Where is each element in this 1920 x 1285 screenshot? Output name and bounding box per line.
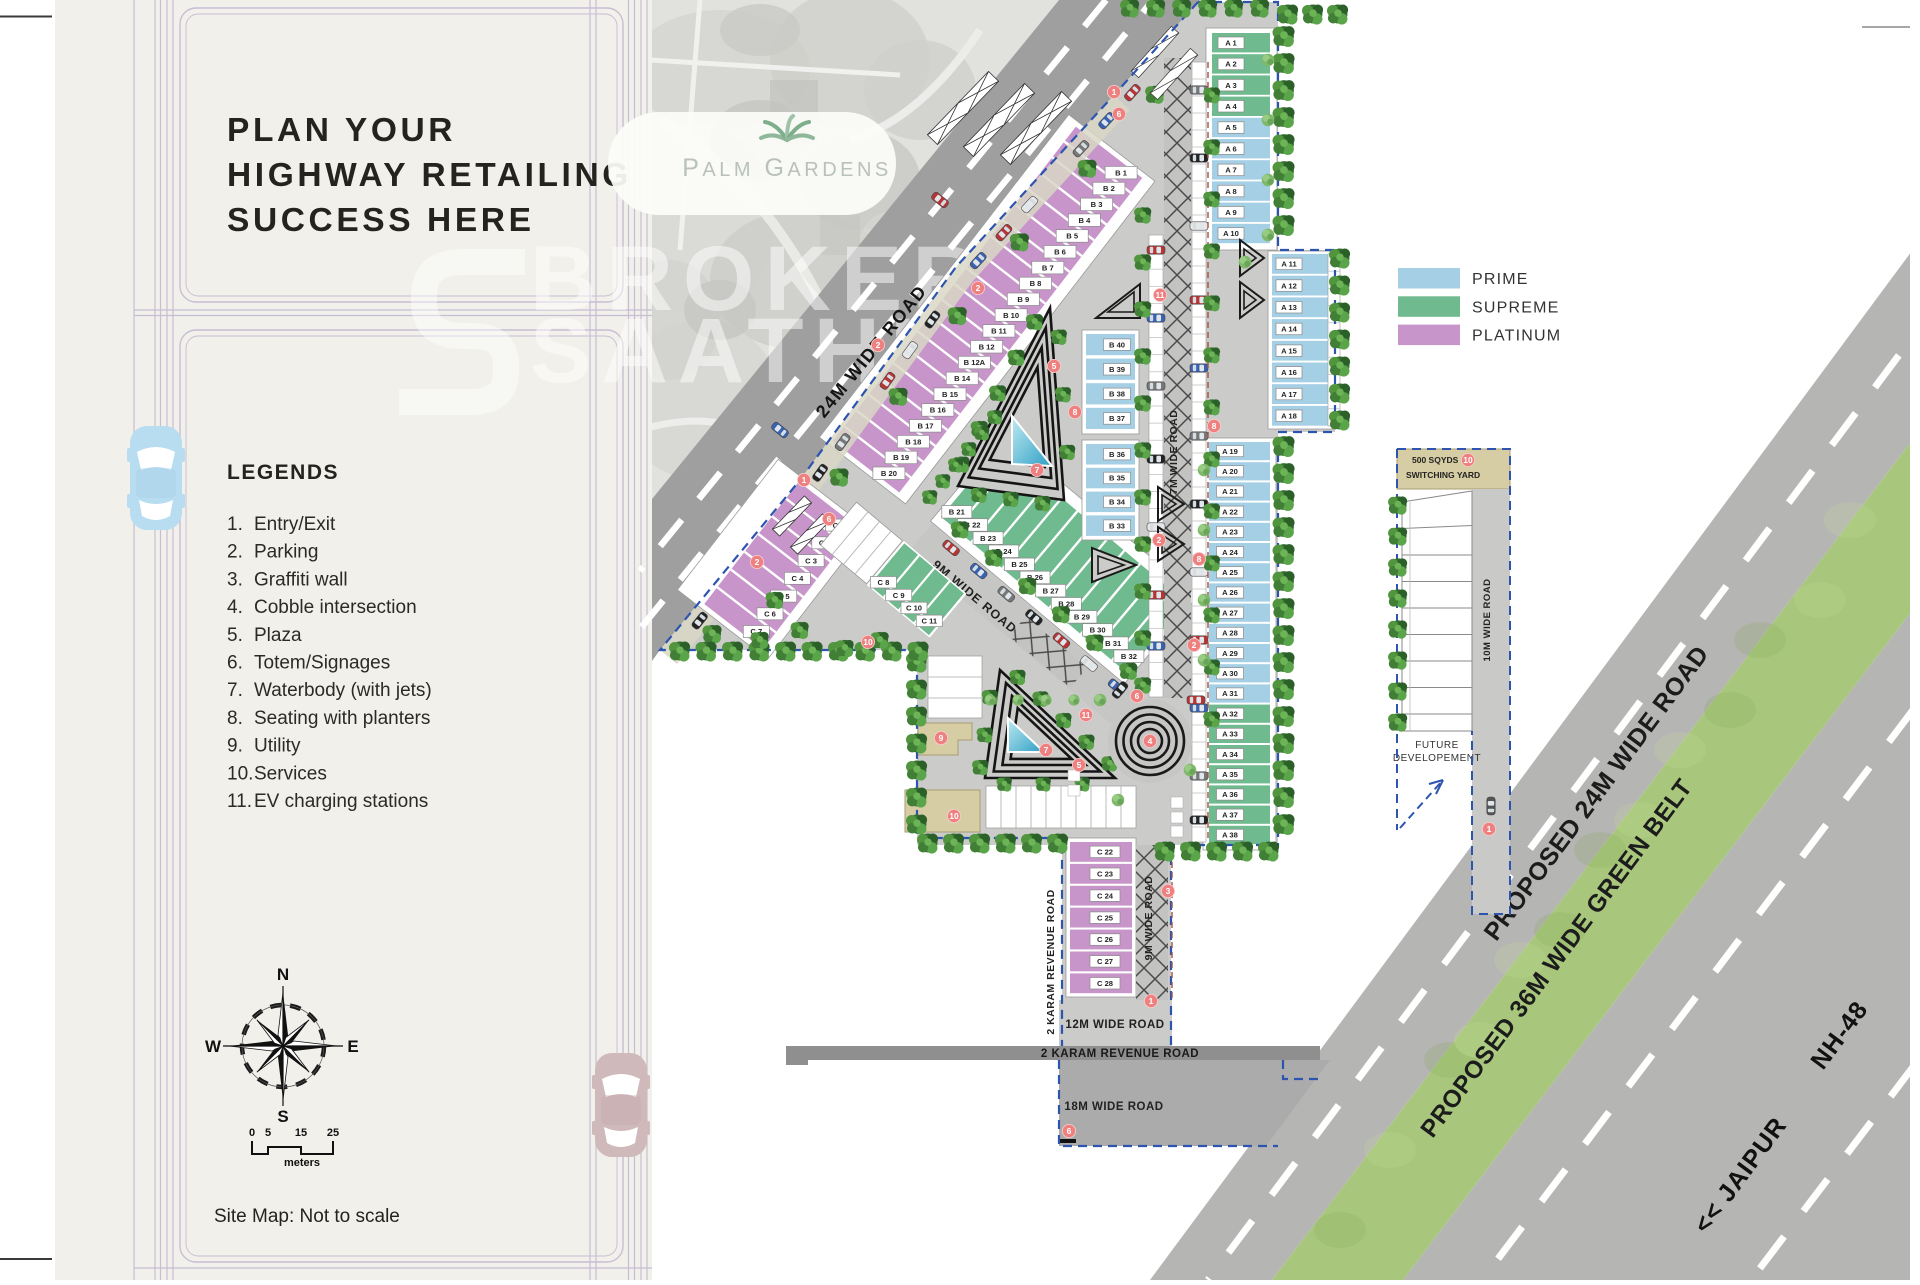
svg-text:Graffiti wall: Graffiti wall	[254, 569, 348, 590]
svg-text:12M WIDE ROAD: 12M WIDE ROAD	[1065, 1019, 1164, 1031]
svg-text:4.: 4.	[227, 597, 243, 618]
svg-text:C 22: C 22	[1097, 848, 1113, 857]
svg-text:Entry/Exit: Entry/Exit	[254, 514, 336, 535]
svg-text:10: 10	[1463, 455, 1473, 465]
svg-text:meters: meters	[284, 1157, 320, 1169]
svg-text:SWITCHING YARD: SWITCHING YARD	[1406, 470, 1480, 480]
svg-text:B 12: B 12	[979, 342, 995, 351]
svg-text:Totem/Signages: Totem/Signages	[254, 653, 390, 674]
svg-text:1: 1	[1487, 824, 1492, 834]
svg-text:B 35: B 35	[1109, 474, 1126, 483]
svg-text:PLATINUM: PLATINUM	[1472, 328, 1561, 345]
svg-text:B 39: B 39	[1109, 365, 1125, 374]
svg-text:PRIME: PRIME	[1472, 271, 1529, 288]
svg-text:C 23: C 23	[1097, 870, 1113, 879]
svg-text:PLAN YOUR: PLAN YOUR	[227, 112, 456, 149]
svg-text:A 32: A 32	[1222, 709, 1238, 718]
svg-text:A 10: A 10	[1223, 229, 1239, 238]
svg-text:A 25: A 25	[1222, 568, 1239, 577]
svg-text:B 16: B 16	[930, 406, 946, 415]
svg-text:A 24: A 24	[1222, 548, 1239, 557]
svg-text:A 38: A 38	[1222, 831, 1238, 840]
svg-text:C 8: C 8	[877, 578, 889, 587]
svg-text:7M WIDE ROAD: 7M WIDE ROAD	[1168, 410, 1180, 495]
svg-text:8: 8	[1073, 407, 1078, 417]
svg-text:7: 7	[1035, 465, 1040, 475]
svg-text:C 28: C 28	[1097, 979, 1113, 988]
svg-text:A 16: A 16	[1281, 368, 1297, 377]
svg-text:A 9: A 9	[1225, 208, 1237, 217]
svg-text:Site Map: Not to scale: Site Map: Not to scale	[214, 1206, 400, 1227]
svg-text:7.: 7.	[227, 680, 243, 701]
svg-text:8: 8	[1212, 421, 1217, 431]
svg-text:Parking: Parking	[254, 542, 318, 563]
svg-text:FUTURE: FUTURE	[1415, 740, 1459, 751]
svg-text:A 6: A 6	[1225, 144, 1237, 153]
svg-text:A 30: A 30	[1222, 669, 1238, 678]
svg-text:A 35: A 35	[1222, 770, 1239, 779]
svg-text:B 7: B 7	[1042, 263, 1054, 272]
svg-text:A 33: A 33	[1222, 730, 1238, 739]
svg-text:9M WIDE ROAD: 9M WIDE ROAD	[1143, 876, 1155, 961]
svg-text:A 31: A 31	[1222, 689, 1239, 698]
svg-text:A 2: A 2	[1225, 60, 1237, 69]
svg-text:A 26: A 26	[1222, 588, 1238, 597]
svg-text:5.: 5.	[227, 625, 243, 646]
svg-text:1: 1	[802, 475, 807, 485]
svg-text:C 25: C 25	[1097, 913, 1114, 922]
svg-text:SUCCESS HERE: SUCCESS HERE	[227, 202, 535, 239]
svg-text:1: 1	[1112, 87, 1117, 97]
svg-text:B 6: B 6	[1054, 248, 1066, 257]
svg-text:A 22: A 22	[1222, 507, 1238, 516]
svg-text:E: E	[347, 1037, 358, 1056]
svg-text:A 37: A 37	[1222, 810, 1238, 819]
svg-text:500 SQYDS: 500 SQYDS	[1412, 455, 1459, 465]
svg-text:A 27: A 27	[1222, 608, 1238, 617]
svg-text:B 14: B 14	[954, 374, 971, 383]
svg-text:A 12: A 12	[1281, 281, 1297, 290]
svg-text:B 36: B 36	[1109, 450, 1125, 459]
svg-text:6: 6	[1135, 691, 1140, 701]
svg-text:B 23: B 23	[980, 534, 996, 543]
svg-text:B 5: B 5	[1066, 232, 1079, 241]
svg-text:LEGENDS: LEGENDS	[227, 461, 339, 484]
svg-text:A 5: A 5	[1225, 123, 1237, 132]
svg-text:B 33: B 33	[1109, 521, 1125, 530]
svg-text:B 12A: B 12A	[964, 358, 986, 367]
svg-text:A 14: A 14	[1281, 325, 1298, 334]
svg-text:S: S	[277, 1107, 288, 1126]
svg-text:B 4: B 4	[1078, 216, 1091, 225]
svg-text:C 6: C 6	[764, 610, 776, 619]
svg-text:Waterbody (with jets): Waterbody (with jets)	[254, 680, 432, 701]
svg-text:B 31: B 31	[1105, 639, 1122, 648]
svg-text:2 KARAM REVENUE ROAD: 2 KARAM REVENUE ROAD	[1041, 1048, 1199, 1060]
svg-text:C 3: C 3	[805, 556, 817, 565]
svg-text:B 18: B 18	[905, 437, 921, 446]
svg-text:B 11: B 11	[991, 327, 1007, 336]
svg-text:18M WIDE ROAD: 18M WIDE ROAD	[1064, 1101, 1163, 1113]
svg-text:B 2: B 2	[1103, 184, 1115, 193]
svg-text:B 19: B 19	[893, 453, 909, 462]
svg-text:Seating with planters: Seating with planters	[254, 708, 430, 729]
svg-text:A 18: A 18	[1281, 412, 1297, 421]
svg-text:5: 5	[1077, 760, 1082, 770]
svg-text:5: 5	[1052, 361, 1057, 371]
svg-text:8: 8	[1197, 554, 1202, 564]
svg-text:1: 1	[1149, 996, 1154, 1006]
svg-text:C 11: C 11	[921, 617, 937, 626]
svg-text:C 27: C 27	[1097, 957, 1113, 966]
svg-text:C 4: C 4	[791, 574, 804, 583]
svg-text:A 8: A 8	[1225, 187, 1237, 196]
svg-text:A 1: A 1	[1225, 38, 1237, 47]
svg-text:B 9: B 9	[1017, 295, 1029, 304]
svg-text:A 20: A 20	[1222, 467, 1238, 476]
svg-text:N: N	[277, 965, 289, 984]
svg-text:3: 3	[1166, 886, 1171, 896]
svg-text:A 36: A 36	[1222, 790, 1238, 799]
svg-text:B 1: B 1	[1115, 168, 1128, 177]
svg-text:A 17: A 17	[1281, 390, 1297, 399]
svg-text:B 32: B 32	[1121, 652, 1137, 661]
svg-text:A 11: A 11	[1281, 260, 1297, 269]
svg-text:Cobble intersection: Cobble intersection	[254, 597, 417, 618]
svg-text:B 3: B 3	[1091, 200, 1103, 209]
svg-text:2: 2	[976, 283, 981, 293]
svg-text:6: 6	[1117, 109, 1122, 119]
svg-text:11.: 11.	[227, 791, 252, 812]
svg-text:B 21: B 21	[949, 508, 966, 517]
svg-text:11: 11	[1082, 710, 1091, 720]
svg-text:6: 6	[1067, 1126, 1072, 1136]
svg-text:25: 25	[327, 1127, 339, 1139]
svg-text:A 29: A 29	[1222, 649, 1238, 658]
svg-text:A 13: A 13	[1281, 303, 1297, 312]
svg-text:SUPREME: SUPREME	[1472, 299, 1560, 316]
svg-text:A 28: A 28	[1222, 629, 1238, 638]
svg-text:C 26: C 26	[1097, 935, 1113, 944]
svg-text:2: 2	[876, 340, 881, 350]
svg-text:10.: 10.	[227, 763, 253, 784]
svg-text:C 24: C 24	[1097, 891, 1114, 900]
svg-text:6.: 6.	[227, 653, 243, 674]
svg-text:PALM GARDENS: PALM GARDENS	[682, 154, 892, 182]
svg-text:A 21: A 21	[1222, 487, 1239, 496]
svg-text:2: 2	[755, 557, 760, 567]
svg-text:B 17: B 17	[917, 422, 933, 431]
svg-text:10: 10	[949, 811, 959, 821]
svg-text:A 34: A 34	[1222, 750, 1239, 759]
svg-text:A 7: A 7	[1225, 166, 1237, 175]
svg-text:B 40: B 40	[1109, 340, 1125, 349]
svg-text:B 34: B 34	[1109, 498, 1126, 507]
svg-text:B 8: B 8	[1030, 279, 1042, 288]
svg-text:B 27: B 27	[1043, 586, 1059, 595]
svg-text:A 4: A 4	[1225, 102, 1237, 111]
svg-text:2: 2	[1157, 535, 1162, 545]
svg-text:A 23: A 23	[1222, 528, 1238, 537]
svg-text:3.: 3.	[227, 569, 243, 590]
svg-text:Plaza: Plaza	[254, 625, 302, 646]
svg-text:B 30: B 30	[1090, 626, 1106, 635]
svg-text:B 38: B 38	[1109, 390, 1125, 399]
svg-text:6: 6	[827, 514, 832, 524]
svg-text:1.: 1.	[227, 514, 243, 535]
svg-text:W: W	[205, 1037, 222, 1056]
svg-text:8.: 8.	[227, 708, 243, 729]
svg-text:Utility: Utility	[254, 736, 301, 757]
svg-text:C 10: C 10	[906, 604, 922, 613]
svg-text:2 KARAM REVENUE ROAD: 2 KARAM REVENUE ROAD	[1045, 889, 1057, 1034]
svg-text:Services: Services	[254, 763, 327, 784]
svg-text:B 20: B 20	[881, 469, 897, 478]
svg-text:9: 9	[939, 733, 944, 743]
svg-text:A 19: A 19	[1222, 447, 1238, 456]
svg-text:DEVELOPEMENT: DEVELOPEMENT	[1393, 753, 1481, 764]
svg-text:B 15: B 15	[942, 390, 959, 399]
svg-text:10: 10	[863, 637, 873, 647]
svg-text:11: 11	[1156, 290, 1165, 300]
svg-text:5: 5	[265, 1127, 271, 1139]
svg-text:C 9: C 9	[893, 591, 905, 600]
svg-text:EV charging stations: EV charging stations	[254, 791, 428, 812]
svg-text:B 37: B 37	[1109, 414, 1125, 423]
svg-text:A 15: A 15	[1281, 346, 1298, 355]
svg-text:A 3: A 3	[1225, 81, 1237, 90]
svg-text:7: 7	[1044, 745, 1049, 755]
svg-text:9.: 9.	[227, 736, 243, 757]
svg-text:B 10: B 10	[1003, 311, 1019, 320]
svg-text:0: 0	[249, 1127, 255, 1139]
svg-text:15: 15	[295, 1127, 307, 1139]
svg-text:2.: 2.	[227, 542, 243, 563]
svg-text:B 29: B 29	[1074, 613, 1090, 622]
svg-text:4: 4	[1148, 736, 1153, 746]
svg-text:10M WIDE ROAD: 10M WIDE ROAD	[1482, 578, 1493, 661]
svg-text:2: 2	[1192, 640, 1197, 650]
svg-text:B 25: B 25	[1011, 560, 1028, 569]
svg-text:HIGHWAY RETAILING: HIGHWAY RETAILING	[227, 157, 632, 194]
